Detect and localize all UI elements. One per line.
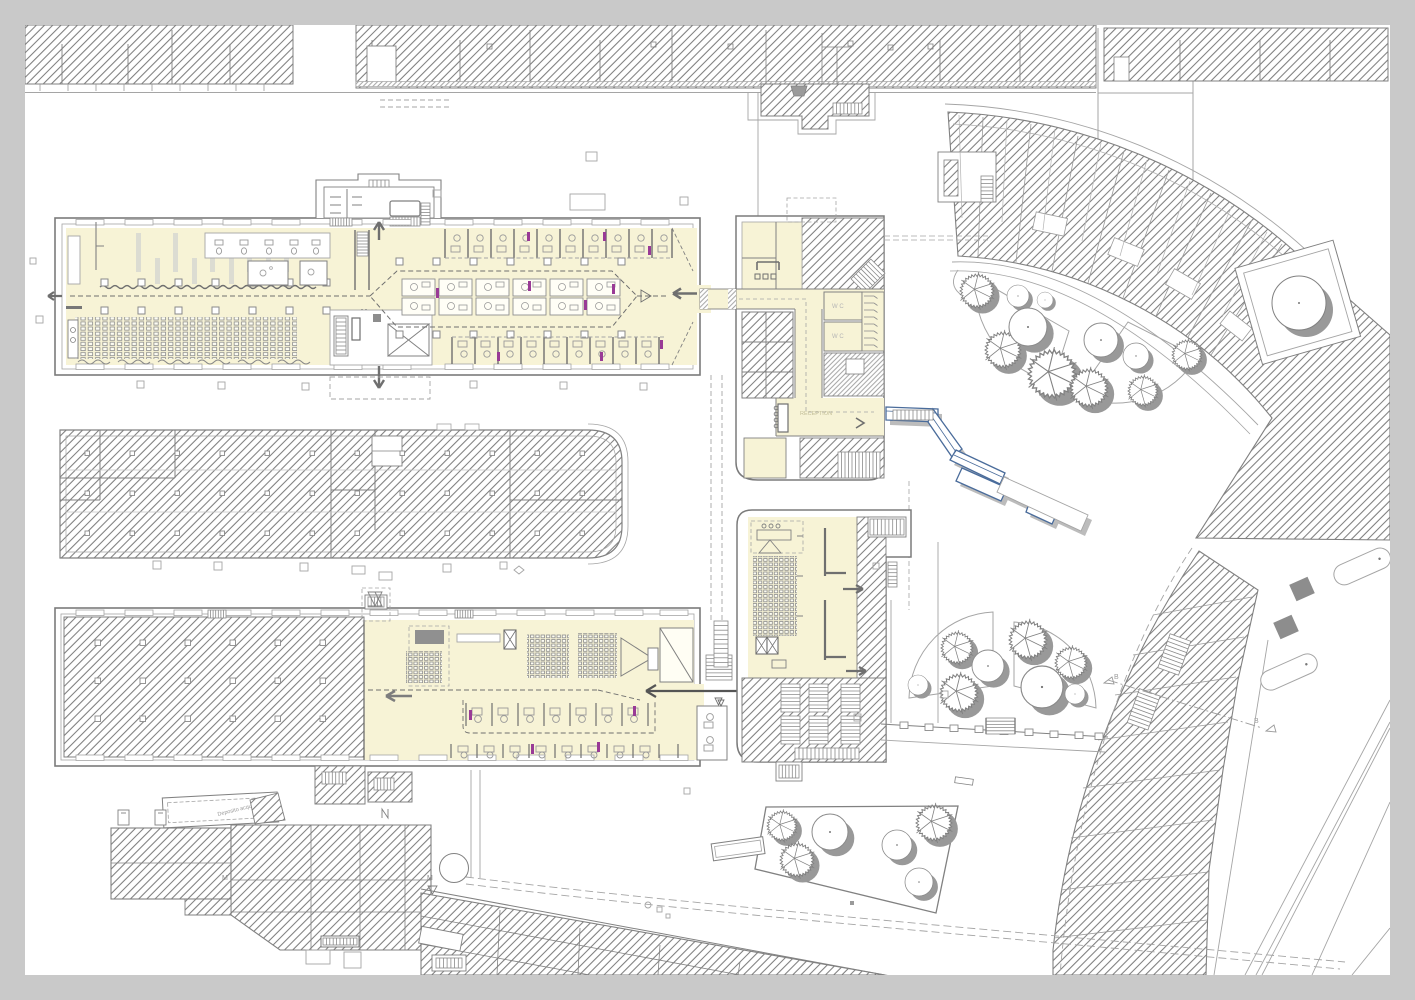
svg-text:RECEPTION: RECEPTION [800, 411, 832, 417]
svg-text:W C: W C [832, 304, 844, 310]
svg-text:M: M [222, 875, 228, 882]
svg-text:M: M [427, 875, 433, 882]
svg-text:W C: W C [832, 334, 844, 340]
svg-text:B: B [1254, 718, 1259, 725]
svg-text:B: B [1114, 674, 1119, 681]
